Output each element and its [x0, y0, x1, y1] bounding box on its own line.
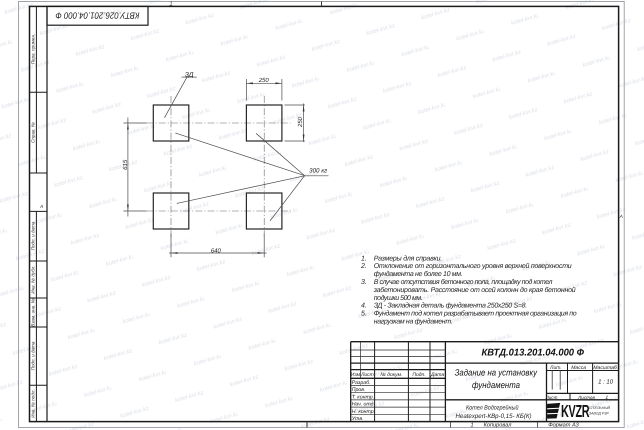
svg-text:5.: 5.: [361, 311, 367, 318]
svg-text:Инв. № подл.: Инв. № подл.: [31, 389, 36, 418]
svg-text:КВТД.013.201.04.000 Ф: КВТД.013.201.04.000 Ф: [482, 347, 585, 358]
svg-text:фундамента: фундамента: [472, 380, 520, 390]
svg-text:Изм: Изм: [351, 372, 361, 378]
svg-text:Инв. № дубл.: Инв. № дубл.: [31, 265, 36, 293]
svg-text:1: 1: [169, 1, 172, 8]
svg-text:Задание на установку: Задание на установку: [455, 368, 538, 378]
svg-text:Пров.: Пров.: [352, 387, 366, 393]
svg-text:640: 640: [211, 247, 222, 254]
svg-text:KVZR: KVZR: [561, 401, 590, 421]
svg-text:Перв. примен.: Перв. примен.: [31, 34, 36, 65]
svg-text:1: 1: [470, 422, 473, 428]
svg-text:Лит.: Лит.: [549, 365, 562, 371]
svg-text:250: 250: [297, 116, 304, 128]
svg-text:1.: 1.: [361, 255, 367, 262]
svg-text:2.: 2.: [360, 263, 367, 270]
svg-text:Взам. инв. №: Взам. инв. №: [31, 298, 36, 326]
svg-text:забетонировать. Расстояние от: забетонировать. Расстояние от осей колон…: [373, 286, 576, 294]
svg-text:1 : 10: 1 : 10: [598, 378, 614, 385]
svg-text:Нач. отд: Нач. отд: [352, 402, 374, 408]
svg-text:1: 1: [605, 395, 608, 401]
svg-text:Heatexpert-КВр-0,15- КБ(К): Heatexpert-КВр-0,15- КБ(К): [456, 413, 532, 420]
svg-text:Листов: Листов: [577, 395, 595, 400]
svg-text:Разраб.: Разраб.: [352, 380, 371, 386]
svg-text:250: 250: [258, 77, 270, 84]
svg-text:КВТУ.026.201.04.000 Ф: КВТУ.026.201.04.000 Ф: [56, 11, 140, 21]
svg-text:А: А: [619, 214, 623, 220]
svg-text:Н. контр.: Н. контр.: [352, 409, 375, 415]
svg-text:фундамента не более 10 мм.: фундамента не более 10 мм.: [374, 270, 463, 278]
svg-text:Масса: Масса: [571, 365, 586, 371]
svg-text:Т. контр.: Т. контр.: [352, 394, 374, 400]
svg-text:№ докум.: № докум.: [380, 372, 402, 378]
svg-text:нагрузкам на фундамент.: нагрузкам на фундамент.: [374, 318, 453, 326]
svg-text:3.: 3.: [361, 279, 367, 286]
svg-text:Справ. №: Справ. №: [31, 122, 36, 143]
svg-text:ЗАВОД РЗР: ЗАВОД РЗР: [589, 412, 610, 416]
svg-text:615: 615: [122, 159, 129, 170]
svg-text:В случае отсутствия бетонного: В случае отсутствия бетонного пола, площ…: [374, 278, 553, 286]
svg-text:Копировал: Копировал: [484, 422, 513, 428]
svg-text:Отклонение от горизонтального: Отклонение от горизонтального уровня вер…: [374, 262, 572, 270]
svg-text:Подп.: Подп.: [412, 372, 425, 378]
svg-text:300 кг: 300 кг: [309, 168, 327, 175]
svg-text:Котел Водогрейный: Котел Водогрейный: [466, 405, 519, 412]
svg-text:ЗД - Закладная деталь фундамен: ЗД - Закладная деталь фундамента 250х250…: [374, 302, 528, 310]
svg-text:Фундамент под котел разрабатыв: Фундамент под котел разрабатывает проект…: [374, 310, 577, 318]
svg-text:4.: 4.: [361, 303, 367, 310]
svg-text:ЗД: ЗД: [185, 71, 195, 78]
svg-text:Масштаб: Масштаб: [593, 365, 617, 371]
svg-text:Утв.: Утв.: [352, 416, 364, 422]
svg-text:подушки 500 мм.: подушки 500 мм.: [374, 294, 423, 302]
svg-text:Дата: Дата: [430, 372, 444, 378]
svg-text:Лист: Лист: [360, 372, 374, 378]
svg-text:Подп. и дата: Подп. и дата: [31, 221, 36, 250]
svg-text:Лист: Лист: [545, 395, 558, 400]
svg-text:Формат А3: Формат А3: [548, 422, 579, 428]
svg-text:А: А: [39, 204, 43, 210]
svg-text:Размеры для справки.: Размеры для справки.: [374, 254, 443, 262]
svg-text:КОТЕЛЬНЫЙ: КОТЕЛЬНЫЙ: [587, 405, 610, 410]
svg-text:Подп. и дата: Подп. и дата: [31, 341, 36, 370]
